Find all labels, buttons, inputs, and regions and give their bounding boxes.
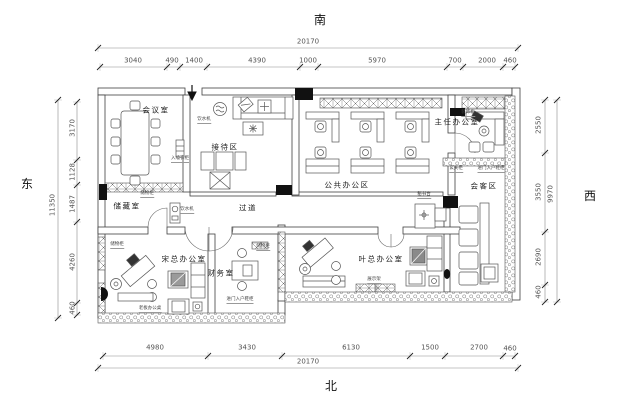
side-table-box2	[429, 276, 439, 286]
coffee-table	[243, 122, 263, 135]
boss-song-desk	[111, 254, 157, 302]
dim-left-seg-3: 4260	[70, 253, 77, 271]
floor-plan-page: 南 北 东 西 20170 20170 11350 9970 3040 490 …	[0, 0, 640, 405]
room-label-boss-ye: 叶总办公室	[359, 255, 404, 263]
dim-left-seg-2: 1487	[70, 195, 77, 213]
dim-bottom-seg-0: 4980	[146, 345, 164, 352]
ann-wardrobe: 入墙衣柜	[171, 157, 189, 163]
room-label-guest: 会客区	[471, 182, 498, 190]
compass-south: 南	[314, 14, 326, 26]
boss-ye-tv	[410, 247, 427, 265]
finance-desk	[232, 249, 258, 291]
room-label-corridor: 过道	[239, 204, 257, 212]
dim-top-seg-5: 5970	[368, 58, 386, 65]
dim-top-seg-2: 1400	[185, 58, 203, 65]
workstation	[396, 112, 429, 173]
plant-box	[258, 100, 271, 113]
compass-north: 北	[325, 380, 337, 392]
dim-top-seg-0: 3040	[124, 58, 142, 65]
secretary-desk	[415, 204, 446, 228]
dim-left-total: 11350	[50, 194, 57, 216]
dim-right-seg-2: 2690	[536, 248, 543, 266]
boss-song-tv	[168, 271, 188, 288]
dim-top-seg-3: 4390	[248, 58, 266, 65]
ann-water-2: 饮水机	[180, 208, 194, 214]
workstation	[306, 112, 339, 173]
room-label-director: 主任办公室	[435, 118, 480, 126]
dim-top-total: 20170	[297, 39, 319, 46]
compass-east: 东	[21, 178, 33, 190]
guest-sofa	[459, 203, 498, 285]
boss-ye-sofa	[427, 236, 442, 271]
ann-display-rack: 展示架	[367, 278, 381, 284]
wardrobe-cabinet	[176, 140, 184, 157]
dim-bottom-seg-4: 2700	[470, 345, 488, 352]
dim-top-seg-7: 2000	[478, 58, 496, 65]
workstation	[351, 112, 384, 173]
dim-right-seg-0: 2550	[536, 116, 543, 134]
compass-west: 西	[584, 190, 596, 202]
ann-secretary-desk: 秘书台	[417, 193, 431, 199]
ann-cabinet-1: 储物柜	[140, 192, 154, 198]
dim-top-seg-1: 490	[165, 58, 178, 65]
room-label-open-office: 公共办公区	[325, 181, 370, 189]
ann-entry-cabinet: 玄关柜	[449, 167, 463, 173]
ann-deco-cabinet: 装饰柜	[461, 111, 475, 117]
dim-bottom-total: 20170	[297, 359, 319, 366]
boss-song-sofa	[191, 263, 205, 298]
dim-bottom-seg-2: 6130	[342, 345, 360, 352]
floor-plan-drawing	[0, 0, 640, 405]
reception-lounge	[201, 152, 246, 189]
dim-right-total: 9970	[548, 185, 555, 203]
side-table-box	[193, 302, 202, 311]
room-label-storage: 储藏室	[114, 202, 141, 210]
boss-song-armchair	[168, 299, 189, 314]
dim-right-seg-1: 3550	[536, 183, 543, 201]
dim-top-seg-6: 700	[448, 58, 461, 65]
water-dispenser	[170, 203, 180, 223]
dim-left-seg-1: 1128	[70, 163, 77, 181]
boss-ye-armchair	[406, 271, 425, 286]
ann-cabinet-2: 储物柜	[110, 243, 124, 249]
room-label-meeting: 会议室	[143, 106, 170, 114]
dim-bottom-seg-3: 1500	[421, 345, 439, 352]
dim-left-seg-0: 3170	[70, 119, 77, 137]
ann-cabinet-3: 储物柜	[256, 245, 270, 251]
room-label-boss-song: 宋总办公室	[162, 255, 207, 263]
ann-entry-shoe-1: 进门入户鞋柜	[478, 167, 505, 173]
ann-boss-desk: 老板办公桌	[139, 307, 162, 313]
dim-top-seg-4: 1000	[299, 58, 317, 65]
dim-top-seg-8: 460	[503, 58, 516, 65]
dim-left-seg-4: 460	[70, 301, 77, 314]
boss-ye-desk	[300, 238, 346, 287]
dim-bottom-seg-5: 460	[503, 346, 516, 353]
ann-water-1: 饮水机	[197, 118, 211, 124]
dim-right-seg-3: 460	[536, 285, 543, 298]
room-label-reception: 接待区	[212, 143, 239, 151]
room-label-finance: 财务室	[208, 269, 235, 277]
dim-bottom-seg-1: 3430	[238, 345, 256, 352]
ann-entry-shoe-2: 进门入户鞋柜	[227, 298, 254, 304]
water-dispenser-round	[214, 103, 227, 116]
